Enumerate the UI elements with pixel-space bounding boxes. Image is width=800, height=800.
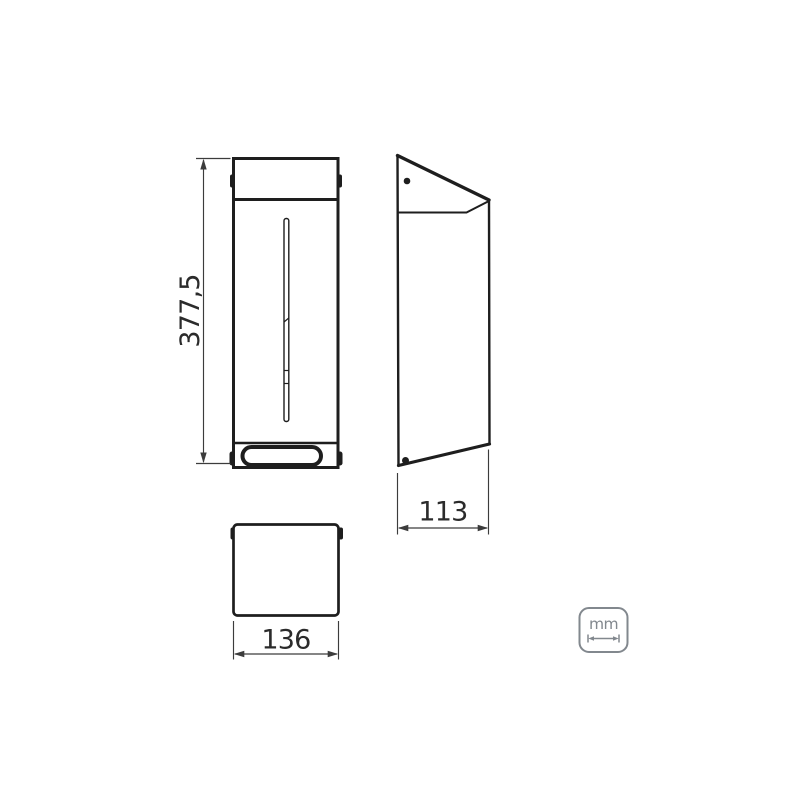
depth-dimension-label: 113: [418, 497, 467, 528]
width-dimension-label: 136: [261, 625, 310, 656]
arrow-right-icon: [478, 525, 489, 532]
technical-drawing-page: 377,5 113: [0, 0, 800, 800]
arrow-left-icon: [234, 651, 245, 658]
units-badge: mm: [580, 608, 628, 652]
bottom-view: [231, 525, 344, 616]
measure-arrow-icon: [588, 635, 619, 643]
height-dimension: 377,5: [175, 159, 231, 464]
screw-hole-top-icon: [404, 178, 411, 185]
units-label: mm: [589, 615, 618, 633]
side-view-outline: [398, 156, 490, 466]
arrow-left-icon: [398, 525, 409, 532]
dispenser-technical-drawing: 377,5 113: [0, 0, 800, 800]
width-dimension: 136: [234, 621, 339, 660]
height-dimension-label: 377,5: [175, 274, 206, 347]
paper-outlet-oval: [243, 447, 322, 465]
arrow-down-icon: [200, 453, 206, 464]
front-view: [230, 159, 343, 468]
bottom-view-outline: [234, 525, 339, 616]
arrow-up-icon: [200, 159, 206, 170]
side-view: [398, 156, 490, 466]
screw-hole-bottom-icon: [402, 457, 409, 464]
arrow-right-icon: [328, 651, 339, 658]
